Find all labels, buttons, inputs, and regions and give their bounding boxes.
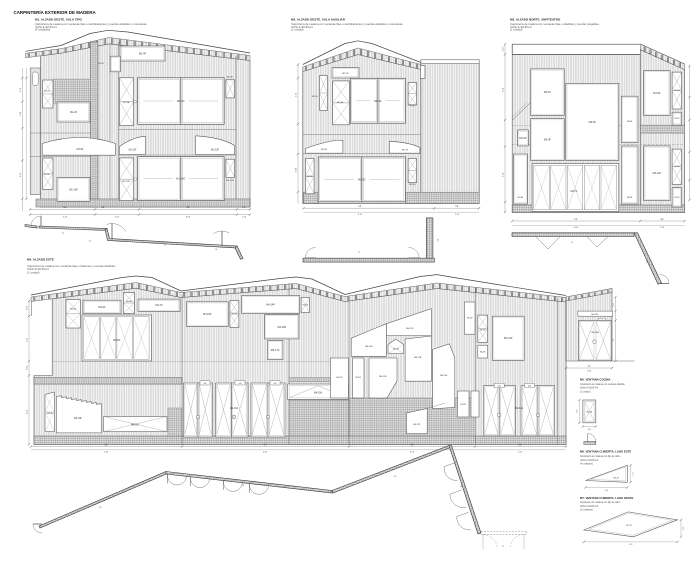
svg-text:M4-22F: M4-22F bbox=[336, 377, 343, 379]
svg-text:M2-3F: M2-3F bbox=[342, 73, 349, 75]
svg-text:4.33: 4.33 bbox=[605, 490, 609, 492]
svg-text:M4-12F: M4-12F bbox=[203, 313, 212, 316]
svg-text:M3-4F: M3-4F bbox=[589, 121, 597, 124]
svg-text:M2-4F: M2-4F bbox=[374, 100, 382, 103]
svg-text:0.60: 0.60 bbox=[588, 429, 592, 431]
svg-text:M1-3F: M1-3F bbox=[98, 63, 105, 65]
svg-text:(08): (08) bbox=[203, 383, 207, 385]
svg-text:M3-1F: M3-1F bbox=[544, 91, 552, 94]
svg-text:M1-10F: M1-10F bbox=[69, 188, 78, 191]
svg-text:M1-8F: M1-8F bbox=[77, 149, 84, 151]
svg-text:M2-10D: M2-10D bbox=[409, 184, 416, 186]
svg-text:M4-9A: M4-9A bbox=[47, 412, 53, 415]
svg-text:M2-5D: M2-5D bbox=[410, 105, 416, 107]
svg-text:M4-8A: M4-8A bbox=[113, 339, 120, 342]
svg-text:M4-27F: M4-27F bbox=[413, 424, 421, 426]
svg-text:M1-9D: M1-9D bbox=[44, 174, 51, 176]
svg-text:(1 unidad): (1 unidad) bbox=[510, 28, 522, 32]
svg-text:CARPINTERÍA EXTERIOR DE MADERA: CARPINTERÍA EXTERIOR DE MADERA bbox=[14, 8, 97, 15]
svg-text:Carpintería de madera con fijo: Carpintería de madera con fijo de vidrio bbox=[580, 455, 621, 458]
svg-text:(08): (08) bbox=[273, 383, 277, 385]
svg-text:M4-26F: M4-26F bbox=[440, 375, 448, 377]
svg-text:M3-6F: M3-6F bbox=[518, 197, 524, 199]
svg-text:M1-13F: M1-13F bbox=[211, 150, 220, 152]
svg-text:M1. ALZADO OESTE. AULA TIPO: M1. ALZADO OESTE. AULA TIPO bbox=[35, 18, 83, 22]
svg-text:1.20: 1.20 bbox=[577, 410, 579, 414]
svg-text:M4-18F: M4-18F bbox=[277, 326, 286, 329]
svg-text:4.76: 4.76 bbox=[629, 544, 633, 546]
svg-text:M4-31F: M4-31F bbox=[504, 337, 513, 340]
svg-text:M1-12H: M1-12H bbox=[122, 181, 130, 183]
svg-text:M1-6C: M1-6C bbox=[177, 100, 185, 103]
svg-text:M4-23F: M4-23F bbox=[414, 357, 422, 359]
svg-text:M2-7F: M2-7F bbox=[402, 150, 409, 152]
svg-text:(2 unidades): (2 unidades) bbox=[580, 510, 593, 512]
svg-text:M4-21F: M4-21F bbox=[406, 328, 414, 330]
svg-text:Vidrio 6+6/16/4+4: Vidrio 6+6/16/4+4 bbox=[580, 505, 599, 508]
svg-text:M2-1D: M2-1D bbox=[312, 96, 319, 98]
svg-text:(08): (08) bbox=[528, 386, 532, 388]
svg-text:M4-2F: M4-2F bbox=[98, 306, 106, 309]
svg-text:M4-30B: M4-30B bbox=[480, 330, 485, 332]
svg-text:M3-11F: M3-11F bbox=[674, 118, 679, 120]
svg-text:(08): (08) bbox=[498, 386, 502, 388]
svg-text:M6. VENTANA CUBIERTA. LADO EST: M6. VENTANA CUBIERTA. LADO ESTE bbox=[580, 449, 631, 453]
svg-text:M1-11F: M1-11F bbox=[129, 150, 137, 152]
svg-text:M1-7D: M1-7D bbox=[227, 77, 234, 79]
svg-text:M2-3A: M2-3A bbox=[337, 101, 344, 104]
svg-text:M4-34A: M4-34A bbox=[515, 407, 524, 410]
svg-text:M3-8F: M3-8F bbox=[627, 197, 633, 199]
svg-text:1.20: 1.20 bbox=[683, 527, 685, 531]
svg-text:M4-17F: M4-17F bbox=[271, 349, 280, 352]
svg-text:M4-32F: M4-32F bbox=[480, 352, 485, 354]
svg-text:M3-5F: M3-5F bbox=[653, 92, 661, 95]
svg-text:M3-7F: M3-7F bbox=[570, 191, 577, 193]
svg-text:M3. ALZADO NORTE. ANFITEATRO: M3. ALZADO NORTE. ANFITEATRO bbox=[510, 18, 561, 22]
svg-text:M1-4F: M1-4F bbox=[139, 53, 147, 56]
svg-text:M2. ALZADO OESTE. AULA AUXILIA: M2. ALZADO OESTE. AULA AUXILIAR bbox=[291, 18, 346, 22]
svg-text:M1-2D: M1-2D bbox=[44, 91, 51, 93]
svg-text:M4-11A: M4-11A bbox=[131, 424, 139, 427]
svg-text:M4-14F: M4-14F bbox=[266, 304, 275, 307]
svg-text:M7-1F: M7-1F bbox=[626, 525, 632, 527]
svg-text:(1 unidad): (1 unidad) bbox=[580, 392, 591, 394]
svg-text:M7. VENTANA CUBIERTA. LADO OES: M7. VENTANA CUBIERTA. LADO OESTE bbox=[580, 496, 634, 500]
svg-text:M3-2F: M3-2F bbox=[519, 137, 527, 140]
svg-text:M3-12F: M3-12F bbox=[653, 172, 662, 175]
svg-text:M1-15D: M1-15D bbox=[226, 180, 234, 182]
svg-text:M4-19A: M4-19A bbox=[314, 392, 323, 395]
svg-text:M5. VENTANA COCINA: M5. VENTANA COCINA bbox=[580, 378, 610, 382]
svg-text:M4-24F: M4-24F bbox=[379, 376, 387, 378]
svg-text:M3-14F: M3-14F bbox=[674, 197, 679, 199]
svg-text:M4. ALZADO ESTE: M4. ALZADO ESTE bbox=[27, 258, 54, 262]
svg-text:M4-6A: M4-6A bbox=[126, 300, 132, 303]
svg-text:Carpintería de madera con vent: Carpintería de madera con ventana abatib… bbox=[580, 383, 626, 386]
svg-text:M2-6F: M2-6F bbox=[321, 149, 328, 151]
svg-text:(4 unidades): (4 unidades) bbox=[35, 28, 50, 32]
svg-text:M4-4A: M4-4A bbox=[70, 308, 76, 311]
svg-text:M4-7F: M4-7F bbox=[155, 304, 163, 307]
svg-text:M1-2F: M1-2F bbox=[70, 111, 78, 114]
svg-text:M4-35F: M4-35F bbox=[592, 314, 600, 316]
svg-text:Carpintería de madera con fijo: Carpintería de madera con fijo de vidrio bbox=[580, 501, 621, 504]
svg-text:M4-28F: M4-28F bbox=[461, 404, 466, 406]
svg-text:M1-14G: M1-14G bbox=[176, 178, 185, 181]
svg-text:M2-9C: M2-9C bbox=[358, 178, 366, 181]
svg-text:Vidrio 6+6/16/4+4: Vidrio 6+6/16/4+4 bbox=[580, 459, 599, 462]
svg-text:M5-1A: M5-1A bbox=[587, 410, 593, 413]
svg-text:M6-1F: M6-1F bbox=[613, 477, 619, 479]
svg-text:M3-6F: M3-6F bbox=[627, 121, 633, 123]
svg-text:M3-3F: M3-3F bbox=[544, 139, 552, 142]
svg-text:M4-36A: M4-36A bbox=[591, 331, 599, 334]
svg-text:M2-8D: M2-8D bbox=[307, 176, 314, 178]
svg-text:M4-23F: M4-23F bbox=[356, 377, 361, 379]
svg-text:1.11: 1.11 bbox=[633, 472, 635, 475]
svg-text:Vidrio 6+6/16/4+4: Vidrio 6+6/16/4+4 bbox=[580, 387, 599, 390]
svg-text:(4 unidades): (4 unidades) bbox=[580, 464, 593, 466]
svg-text:(08): (08) bbox=[238, 383, 242, 385]
svg-text:M4-20F: M4-20F bbox=[365, 346, 373, 348]
svg-text:M4-16A: M4-16A bbox=[230, 407, 239, 410]
svg-text:M1-3A: M1-3A bbox=[123, 101, 130, 104]
svg-text:(1 unidad): (1 unidad) bbox=[27, 270, 39, 274]
svg-text:M4-26B: M4-26B bbox=[467, 318, 472, 320]
svg-text:(1 unidad): (1 unidad) bbox=[291, 28, 303, 32]
svg-text:M4-22A: M4-22A bbox=[393, 348, 400, 351]
svg-text:M4-10F: M4-10F bbox=[74, 418, 83, 420]
